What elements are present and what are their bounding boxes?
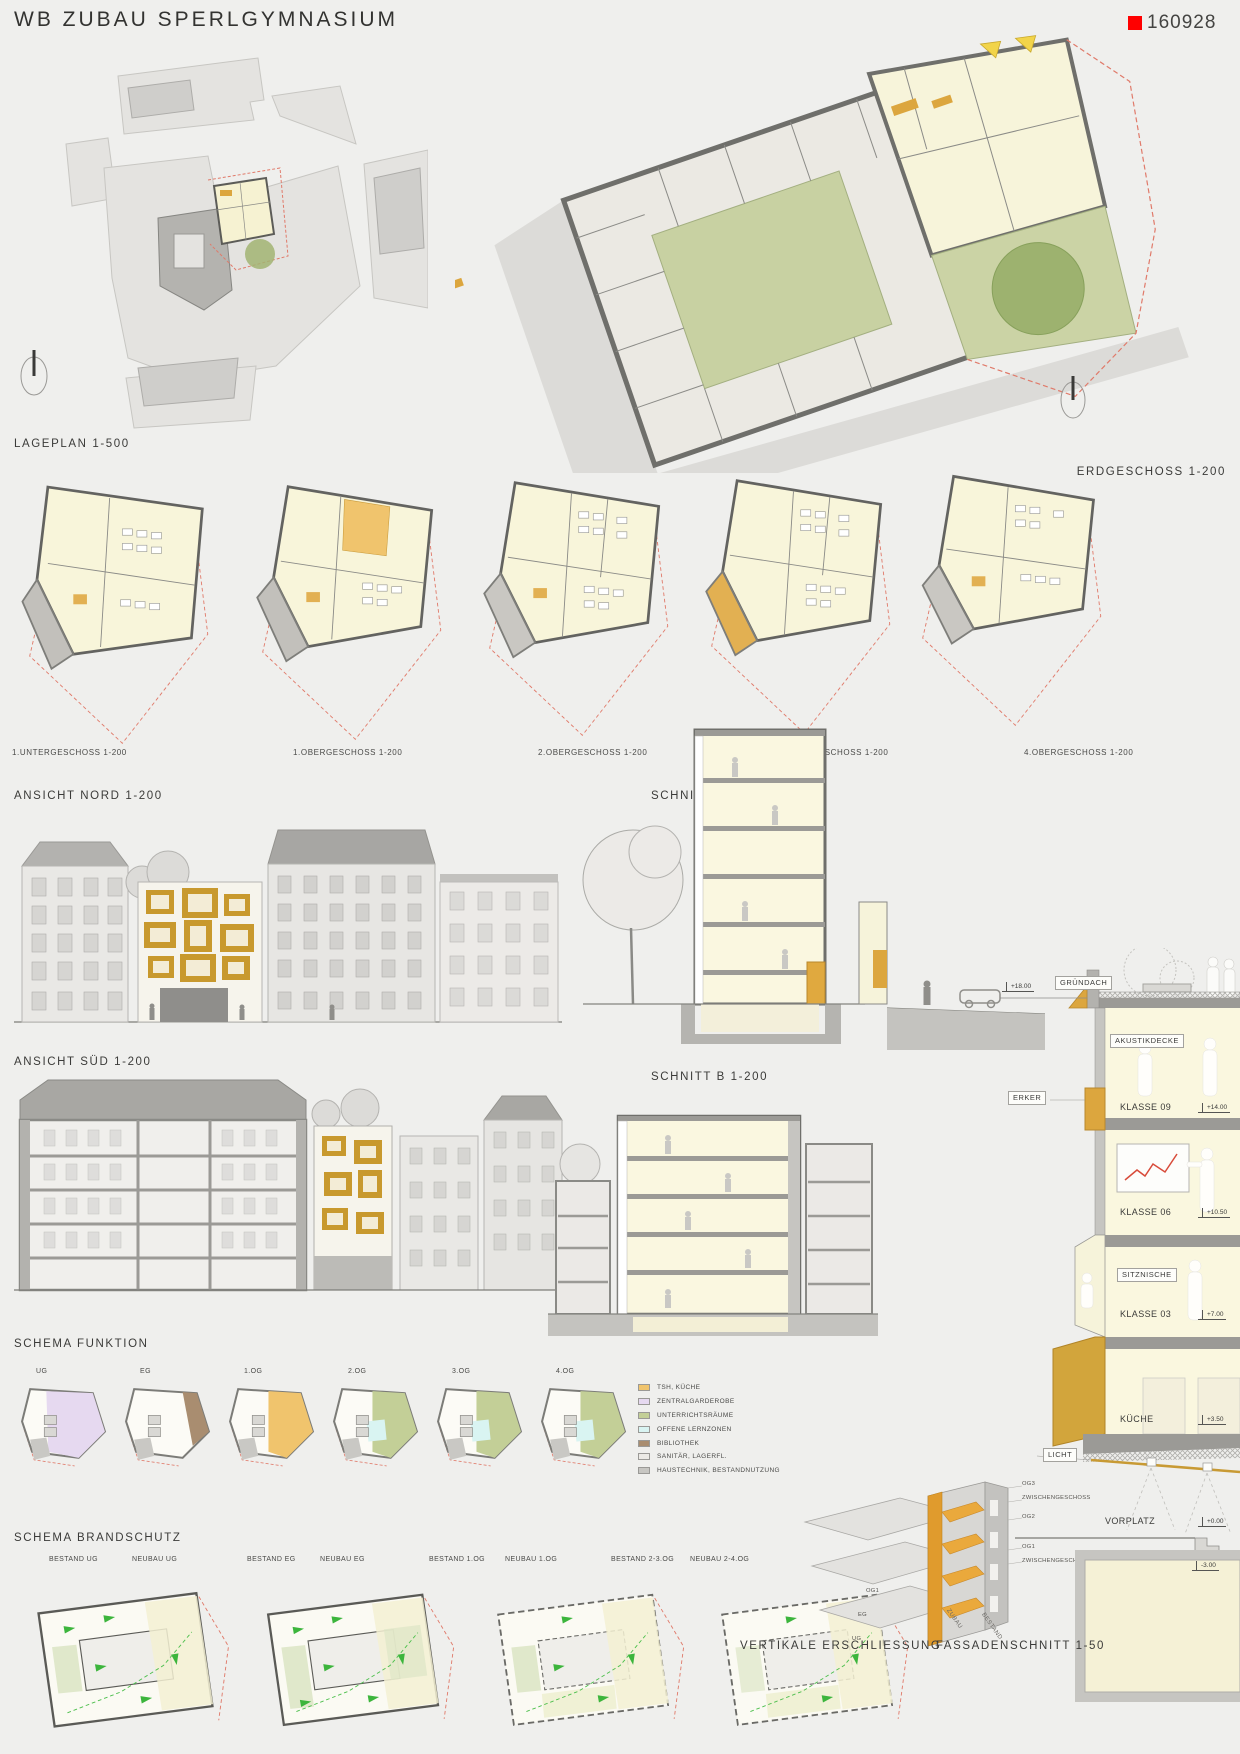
funktion-mini-4og	[536, 1380, 632, 1468]
schnitt-b-label: SCHNITT B 1-200	[651, 1071, 768, 1083]
floor-plan-label-1ug: 1.UNTERGESCHOSS 1-200	[12, 748, 127, 757]
floor-plan-1ug	[12, 478, 240, 746]
legend-item: TSH, KÜCHE	[638, 1381, 780, 1395]
schema-brandschutz-label: SCHEMA BRANDSCHUTZ	[14, 1532, 181, 1544]
ansicht-sued-drawing	[10, 1068, 565, 1320]
brandschutz-plan-1og	[482, 1570, 692, 1752]
level-roof: +18.00	[1002, 983, 1034, 992]
legend-item: UNTERRICHTSRÄUME	[638, 1409, 780, 1423]
legend-item: ZENTRALGARDEROBE	[638, 1395, 780, 1409]
vorplatz-label: VORPLATZ	[1105, 1516, 1155, 1526]
akustikdecke-label: AKUSTIKDECKE	[1110, 1034, 1184, 1048]
legend-chip	[638, 1384, 650, 1391]
legend-chip	[638, 1412, 650, 1419]
ansicht-nord-label: ANSICHT NORD 1-200	[14, 790, 163, 802]
lageplan-label: LAGEPLAN 1-500	[14, 438, 130, 450]
tree	[583, 826, 683, 1004]
schnitt-a-drawing	[575, 712, 1045, 1050]
bs-label-bestand-ug: BESTAND UG	[49, 1556, 98, 1563]
funktion-mini-3og	[432, 1380, 528, 1468]
funktion-floor-3og: 3.OG	[452, 1368, 470, 1375]
new-building-facade	[312, 1089, 392, 1290]
bs-label-neubau-1og: NEUBAU 1.OG	[505, 1556, 557, 1563]
basement	[701, 1004, 819, 1032]
axon-label-eg: EG	[858, 1612, 867, 1618]
section-building	[681, 730, 841, 1044]
legend-item: HAUSTECHNIK, BESTANDNUTZUNG	[638, 1464, 780, 1478]
erker-label: ERKER	[1008, 1091, 1046, 1105]
right-buildings	[400, 1096, 562, 1290]
brandschutz-plan-ug	[22, 1570, 237, 1752]
right-existing	[806, 1144, 872, 1314]
left-existing	[556, 1144, 610, 1314]
funktion-floor-4og: 4.OG	[556, 1368, 574, 1375]
page-title: WB ZUBAU SPERLGYMNASIUM	[14, 8, 398, 32]
ansicht-sued-label: ANSICHT SÜD 1-200	[14, 1056, 152, 1068]
floor-plan-4og	[908, 460, 1130, 728]
bs-label-neubau-24og: NEUBAU 2-4.OG	[690, 1556, 749, 1563]
basement	[633, 1317, 788, 1332]
level-k09: +14.00	[1198, 1104, 1230, 1113]
person	[924, 981, 931, 1006]
legend-item: OFFENE LERNZONEN	[638, 1422, 780, 1436]
gold-erker	[807, 962, 825, 1004]
funktion-floor-eg: EG	[140, 1368, 151, 1375]
level-kueche: +3.50	[1198, 1416, 1226, 1425]
floor-plan-2og	[475, 470, 697, 738]
erdgeschoss-drawing	[455, 28, 1240, 473]
bs-label-neubau-ug: NEUBAU UG	[132, 1556, 177, 1563]
entrance	[160, 988, 228, 1022]
legend-item: SANITÄR, LAGERFL.	[638, 1450, 780, 1464]
gold-windows	[144, 888, 254, 982]
funktion-mini-eg	[120, 1380, 216, 1468]
car-icon	[960, 990, 1000, 1008]
right-building	[268, 830, 435, 1022]
klasse09-label: KLASSE 09	[1120, 1102, 1171, 1112]
new-building-facade	[138, 882, 262, 1022]
klasse06-label: KLASSE 06	[1120, 1207, 1171, 1217]
level-k03: +7.00	[1198, 1311, 1226, 1320]
legend-chip	[638, 1398, 650, 1405]
existing-section	[20, 1080, 306, 1290]
floor-plan-1og	[248, 474, 470, 742]
legend-chip	[638, 1440, 650, 1447]
kueche-label: KÜCHE	[1120, 1414, 1154, 1424]
schema-funktion-label: SCHEMA FUNKTION	[14, 1338, 149, 1350]
brandschutz-plan-eg	[252, 1570, 462, 1752]
klasse03-label: KLASSE 03	[1120, 1309, 1171, 1319]
funktion-floor-1og: 1.OG	[244, 1368, 262, 1375]
fassadenschnitt-caption: FASSADENSCHNITT 1-50	[930, 1640, 1105, 1652]
funktion-mini-1og	[224, 1380, 320, 1468]
floor-plan-label-1og: 1.OBERGESCHOSS 1-200	[293, 748, 402, 757]
legend-chip	[638, 1467, 650, 1474]
roof-people	[1207, 957, 1235, 997]
funktion-mini-2og	[328, 1380, 424, 1468]
lageplan-drawing	[8, 48, 428, 433]
left-building	[22, 842, 128, 1022]
far-right-building	[440, 874, 558, 1022]
level-ground: +0.00	[1198, 1518, 1226, 1527]
main-section	[618, 1116, 800, 1314]
city-blocks	[66, 58, 428, 428]
bs-label-bestand-1og: BESTAND 1.OG	[429, 1556, 485, 1563]
level-k06: +10.50	[1198, 1209, 1230, 1218]
legend-chip	[638, 1453, 650, 1460]
legend-item: BIBLIOTHEK	[638, 1436, 780, 1450]
gold-wedge	[1053, 1337, 1105, 1446]
bs-label-bestand-eg: BESTAND EG	[247, 1556, 296, 1563]
legend-chip	[638, 1426, 650, 1433]
funktion-floor-2og: 2.OG	[348, 1368, 366, 1375]
funktion-mini-ug	[16, 1380, 112, 1468]
fassadenschnitt-drawing	[995, 948, 1240, 1708]
gruendach-label: GRÜNDACH	[1055, 976, 1112, 990]
schnitt-b-drawing	[548, 1086, 878, 1336]
competition-board: WB ZUBAU SPERLGYMNASIUM 160928	[0, 0, 1240, 1754]
north-arrow-icon	[21, 350, 47, 395]
bs-label-bestand-23og: BESTAND 2-3.OG	[611, 1556, 674, 1563]
erker-bay	[1085, 1088, 1105, 1130]
licht-label: LICHT	[1043, 1448, 1077, 1462]
bs-label-neubau-eg: NEUBAU EG	[320, 1556, 365, 1563]
axon-label-og1l: OG1	[866, 1588, 879, 1594]
funktion-legend: TSH, KÜCHE ZENTRALGARDEROBE UNTERRICHTSR…	[638, 1381, 780, 1478]
vertikale-caption: VERTIKALE ERSCHLIESSUNG	[740, 1640, 941, 1652]
funktion-floor-ug: UG	[36, 1368, 47, 1375]
level-basement: -3.00	[1192, 1562, 1219, 1571]
sitznische-label: SITZNISCHE	[1117, 1268, 1177, 1282]
floor-plan-3og	[697, 468, 919, 736]
ansicht-nord-drawing	[10, 804, 565, 1046]
